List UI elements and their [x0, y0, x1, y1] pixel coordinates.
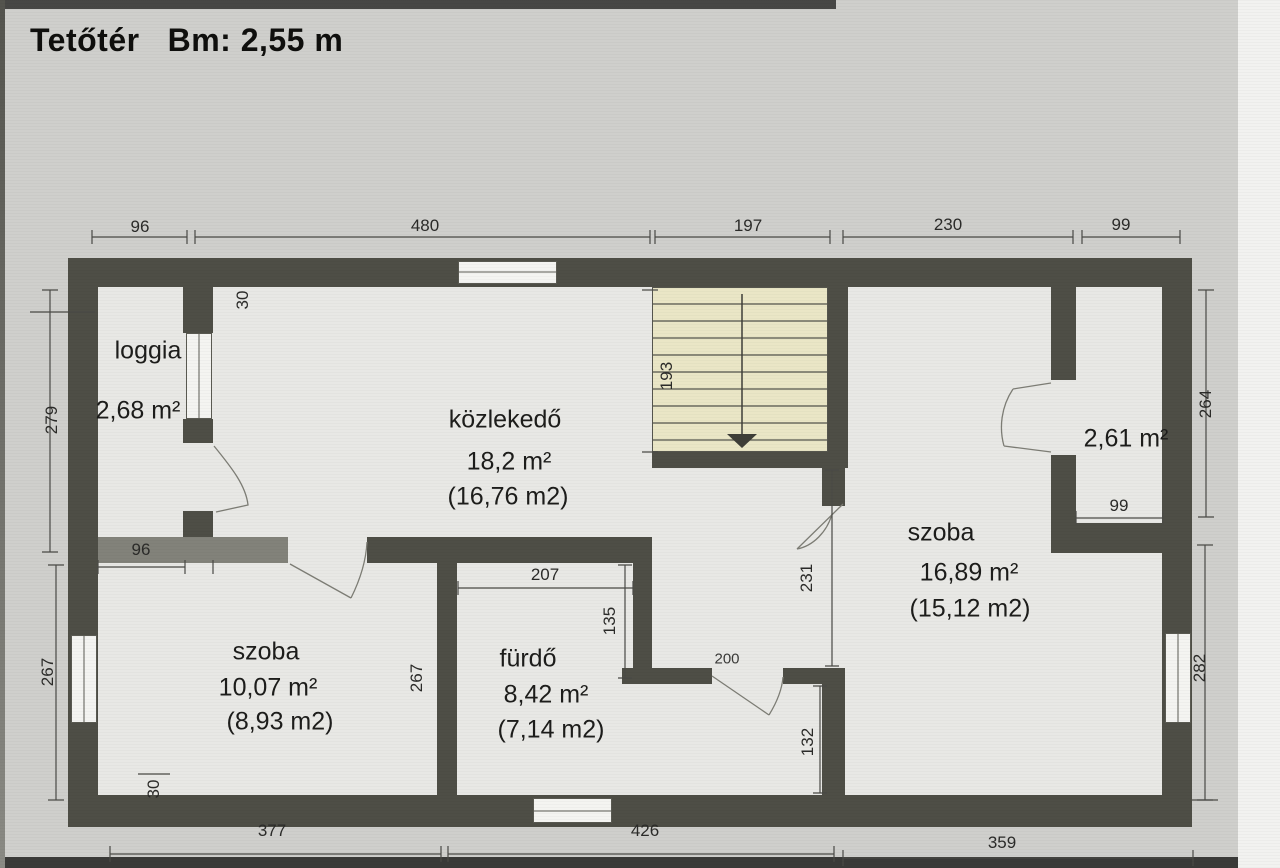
door-swing-balcony-right: [1001, 383, 1051, 452]
dim-left-1: 279: [42, 406, 62, 434]
room-area-szoba-left: 10,07 m²: [219, 674, 318, 703]
dim-furdo-135: 135: [600, 607, 620, 635]
room-area-net-kozlekedo: (16,76 m2): [448, 483, 569, 512]
dim-passage-132: 132: [798, 728, 818, 756]
dimension-lines: [30, 230, 1218, 866]
dim-szoba-left-267: 267: [407, 664, 427, 692]
room-label-furdo: fürdő: [500, 645, 557, 674]
dim-top-5: 99: [1112, 215, 1131, 235]
dim-top-3: 197: [734, 216, 762, 236]
floor-plan-page: { "header": { "floor_name": "Tetőtér", "…: [0, 0, 1280, 868]
room-area-balcony-right: 2,61 m²: [1084, 425, 1169, 454]
room-area-net-szoba-right: (15,12 m2): [910, 595, 1031, 624]
dim-wall-30-top: 30: [233, 291, 253, 310]
dim-wall-30-bottom: 30: [144, 780, 164, 799]
room-label-szoba-right: szoba: [908, 519, 975, 548]
dim-bottom-1: 377: [258, 821, 286, 841]
dim-furdo-207: 207: [531, 565, 559, 585]
dim-stair-193: 193: [657, 362, 677, 390]
dim-top-4: 230: [934, 215, 962, 235]
dim-left-2: 267: [38, 658, 58, 686]
dim-loggia-96: 96: [132, 540, 151, 560]
dim-opening-231: 231: [797, 564, 817, 592]
room-label-szoba-left: szoba: [233, 638, 300, 667]
room-label-kozlekedo: közlekedő: [449, 406, 562, 435]
dim-right-1: 264: [1196, 390, 1216, 418]
stair-direction-arrow: [727, 294, 757, 448]
stair-treads: [652, 304, 828, 440]
dim-top-2: 480: [411, 216, 439, 236]
dim-bottom-3: 359: [988, 833, 1016, 853]
room-area-loggia: 2,68 m²: [96, 397, 181, 426]
dim-right-2: 282: [1190, 654, 1210, 682]
dim-door-200: 200: [714, 651, 739, 668]
door-swing-szoba-left: [290, 542, 367, 598]
door-swing-passage: [712, 676, 783, 715]
door-swings: [214, 383, 1051, 715]
room-area-net-furdo: (7,14 m2): [498, 716, 605, 745]
dim-bottom-2: 426: [631, 821, 659, 841]
room-label-loggia: loggia: [115, 337, 182, 366]
room-area-net-szoba-left: (8,93 m2): [227, 708, 334, 737]
room-area-szoba-right: 16,89 m²: [920, 559, 1019, 588]
door-swing-szoba-right: [797, 504, 843, 549]
room-area-kozlekedo: 18,2 m²: [467, 448, 552, 477]
room-area-furdo: 8,42 m²: [504, 681, 589, 710]
dim-balcony-99: 99: [1110, 496, 1129, 516]
door-swing-loggia: [214, 446, 248, 512]
dim-top-1: 96: [131, 217, 150, 237]
